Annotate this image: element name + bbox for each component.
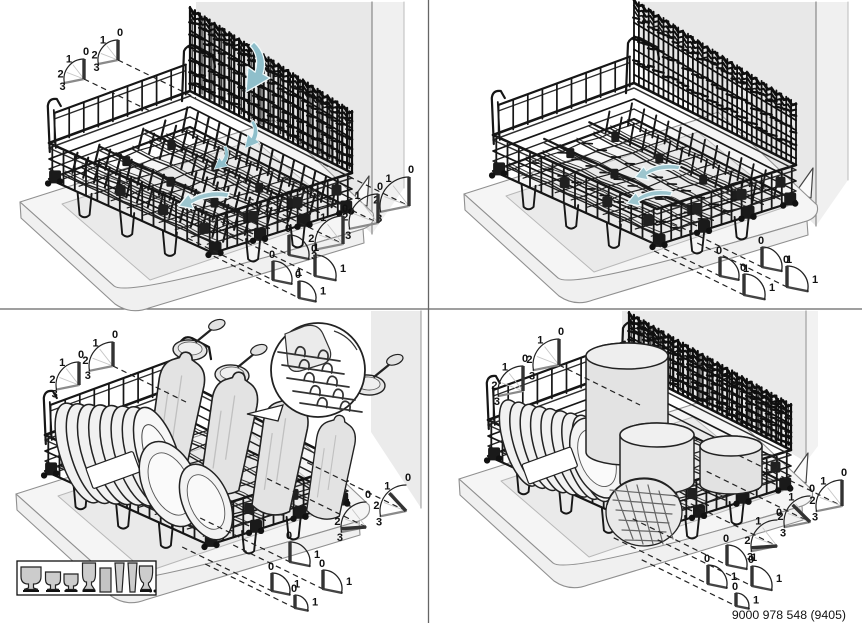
- svg-text:0: 0: [408, 164, 414, 176]
- svg-text:0: 0: [783, 254, 789, 266]
- svg-text:1: 1: [753, 594, 759, 606]
- svg-text:0: 0: [732, 581, 738, 593]
- svg-text:0: 0: [776, 507, 782, 519]
- svg-text:0: 0: [558, 326, 564, 338]
- svg-text:3: 3: [494, 396, 500, 408]
- svg-text:1: 1: [769, 282, 775, 294]
- svg-text:0: 0: [286, 530, 292, 542]
- svg-text:0: 0: [342, 203, 348, 215]
- svg-text:0: 0: [740, 262, 746, 274]
- svg-text:1: 1: [345, 498, 351, 510]
- svg-text:3: 3: [52, 389, 58, 401]
- svg-text:1: 1: [354, 190, 360, 202]
- svg-text:1: 1: [384, 481, 390, 493]
- svg-text:1: 1: [820, 476, 826, 488]
- svg-text:3: 3: [93, 62, 99, 74]
- svg-text:1: 1: [537, 335, 543, 347]
- svg-text:3: 3: [345, 230, 351, 242]
- svg-text:0: 0: [704, 553, 710, 565]
- svg-text:0: 0: [809, 483, 815, 495]
- svg-text:1: 1: [320, 286, 326, 298]
- svg-text:3: 3: [59, 81, 65, 93]
- svg-text:2: 2: [744, 535, 750, 547]
- svg-text:1: 1: [100, 35, 106, 47]
- svg-text:3: 3: [337, 532, 343, 544]
- svg-text:1: 1: [320, 212, 326, 224]
- svg-text:0: 0: [716, 245, 722, 257]
- svg-text:2: 2: [91, 49, 97, 61]
- svg-text:1: 1: [59, 357, 65, 369]
- svg-text:1: 1: [812, 274, 818, 286]
- svg-text:0: 0: [748, 554, 754, 566]
- svg-text:3: 3: [529, 370, 535, 382]
- svg-text:0: 0: [291, 583, 297, 595]
- svg-text:0: 0: [405, 472, 411, 484]
- svg-text:2: 2: [373, 500, 379, 512]
- svg-text:0: 0: [269, 249, 275, 261]
- svg-text:1: 1: [755, 516, 761, 528]
- svg-text:1: 1: [66, 54, 72, 66]
- svg-text:3: 3: [812, 511, 818, 523]
- svg-text:1: 1: [385, 173, 391, 185]
- svg-text:0: 0: [268, 561, 274, 573]
- svg-text:0: 0: [841, 467, 847, 479]
- svg-text:3: 3: [376, 516, 382, 528]
- svg-text:0: 0: [83, 46, 89, 58]
- svg-text:0: 0: [365, 489, 371, 501]
- svg-text:3: 3: [85, 370, 91, 382]
- svg-text:0: 0: [319, 558, 325, 570]
- svg-text:2: 2: [57, 68, 63, 80]
- svg-text:0: 0: [117, 27, 123, 39]
- svg-text:0: 0: [723, 533, 729, 545]
- svg-text:2: 2: [491, 380, 497, 392]
- svg-text:0: 0: [112, 329, 118, 341]
- svg-text:2: 2: [82, 355, 88, 367]
- svg-text:1: 1: [312, 596, 318, 608]
- svg-text:0: 0: [311, 243, 317, 255]
- svg-text:0: 0: [295, 269, 301, 281]
- svg-text:2: 2: [526, 354, 532, 366]
- svg-text:1: 1: [776, 573, 782, 585]
- svg-text:0: 0: [285, 223, 291, 235]
- svg-text:1: 1: [788, 492, 794, 504]
- svg-text:1: 1: [92, 337, 98, 349]
- svg-text:1: 1: [340, 263, 346, 275]
- svg-text:3: 3: [780, 527, 786, 539]
- svg-text:0: 0: [758, 235, 764, 247]
- svg-text:2: 2: [809, 495, 815, 507]
- svg-text:1: 1: [346, 576, 352, 588]
- svg-text:9000 978 548 (9405): 9000 978 548 (9405): [732, 608, 846, 622]
- svg-text:1: 1: [502, 362, 508, 374]
- svg-text:2: 2: [49, 374, 55, 386]
- svg-text:2: 2: [334, 516, 340, 528]
- svg-text:0: 0: [377, 181, 383, 193]
